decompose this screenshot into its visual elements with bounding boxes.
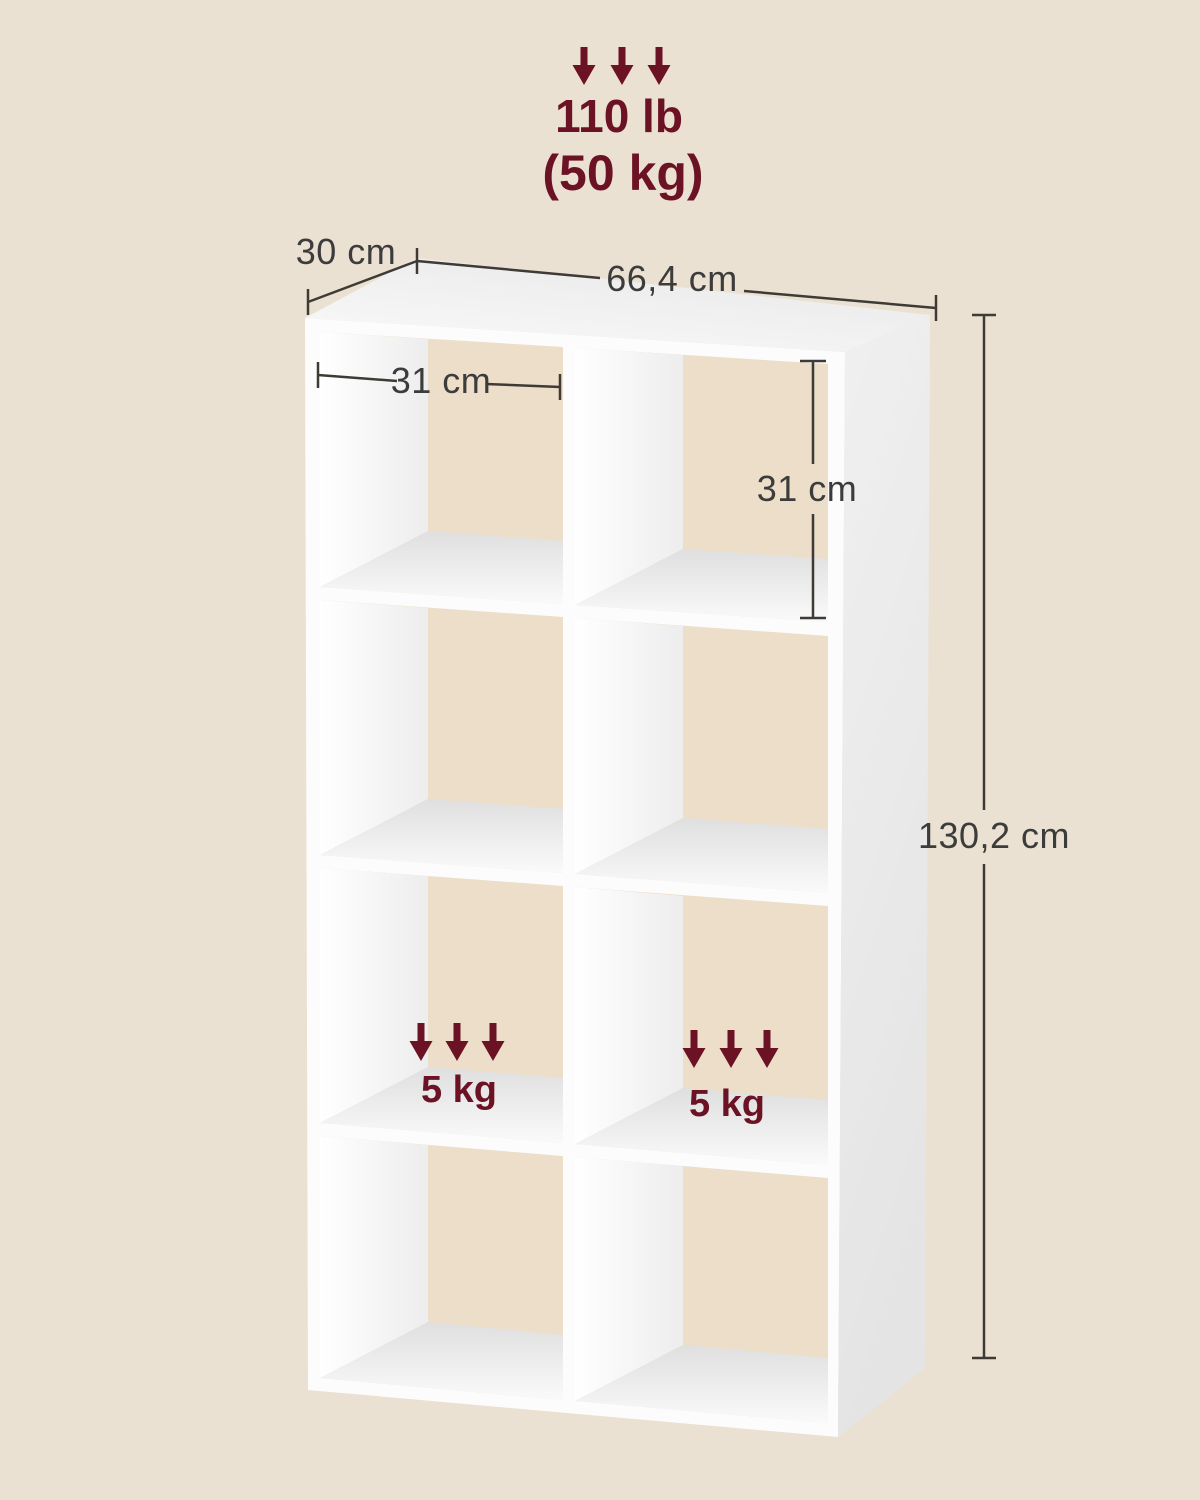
down-arrow-icon bbox=[573, 47, 596, 85]
inner-height-label: 31 cm bbox=[757, 468, 858, 509]
height-label: 130,2 cm bbox=[918, 815, 1070, 856]
max-load-kg-label: (50 kg) bbox=[542, 145, 703, 201]
cube-opening-row2-left bbox=[320, 600, 563, 873]
cube-opening-row2-right bbox=[575, 618, 828, 893]
down-arrow-icon bbox=[648, 47, 671, 85]
width-label: 66,4 cm bbox=[606, 258, 738, 299]
down-arrow-icon bbox=[611, 47, 634, 85]
cube-opening-row4-left bbox=[320, 1136, 563, 1400]
product-dimension-diagram: 30 cm 66,4 cm 31 cm 31 cm 130,2 cm 1 bbox=[0, 0, 1200, 1500]
cube-opening-row4-right bbox=[575, 1157, 828, 1423]
diagram-canvas: 30 cm 66,4 cm 31 cm 31 cm 130,2 cm 1 bbox=[0, 0, 1200, 1500]
bookshelf bbox=[305, 258, 930, 1437]
depth-label: 30 cm bbox=[296, 231, 397, 272]
max-load-lb-label: 110 lb bbox=[555, 90, 683, 142]
max-load-annotation: 110 lb (50 kg) bbox=[542, 47, 703, 201]
shelf-load-left-label: 5 kg bbox=[421, 1069, 497, 1111]
inner-width-label: 31 cm bbox=[391, 360, 492, 401]
height-dimension: 130,2 cm bbox=[918, 315, 1070, 1358]
shelf-load-right-label: 5 kg bbox=[689, 1083, 765, 1125]
